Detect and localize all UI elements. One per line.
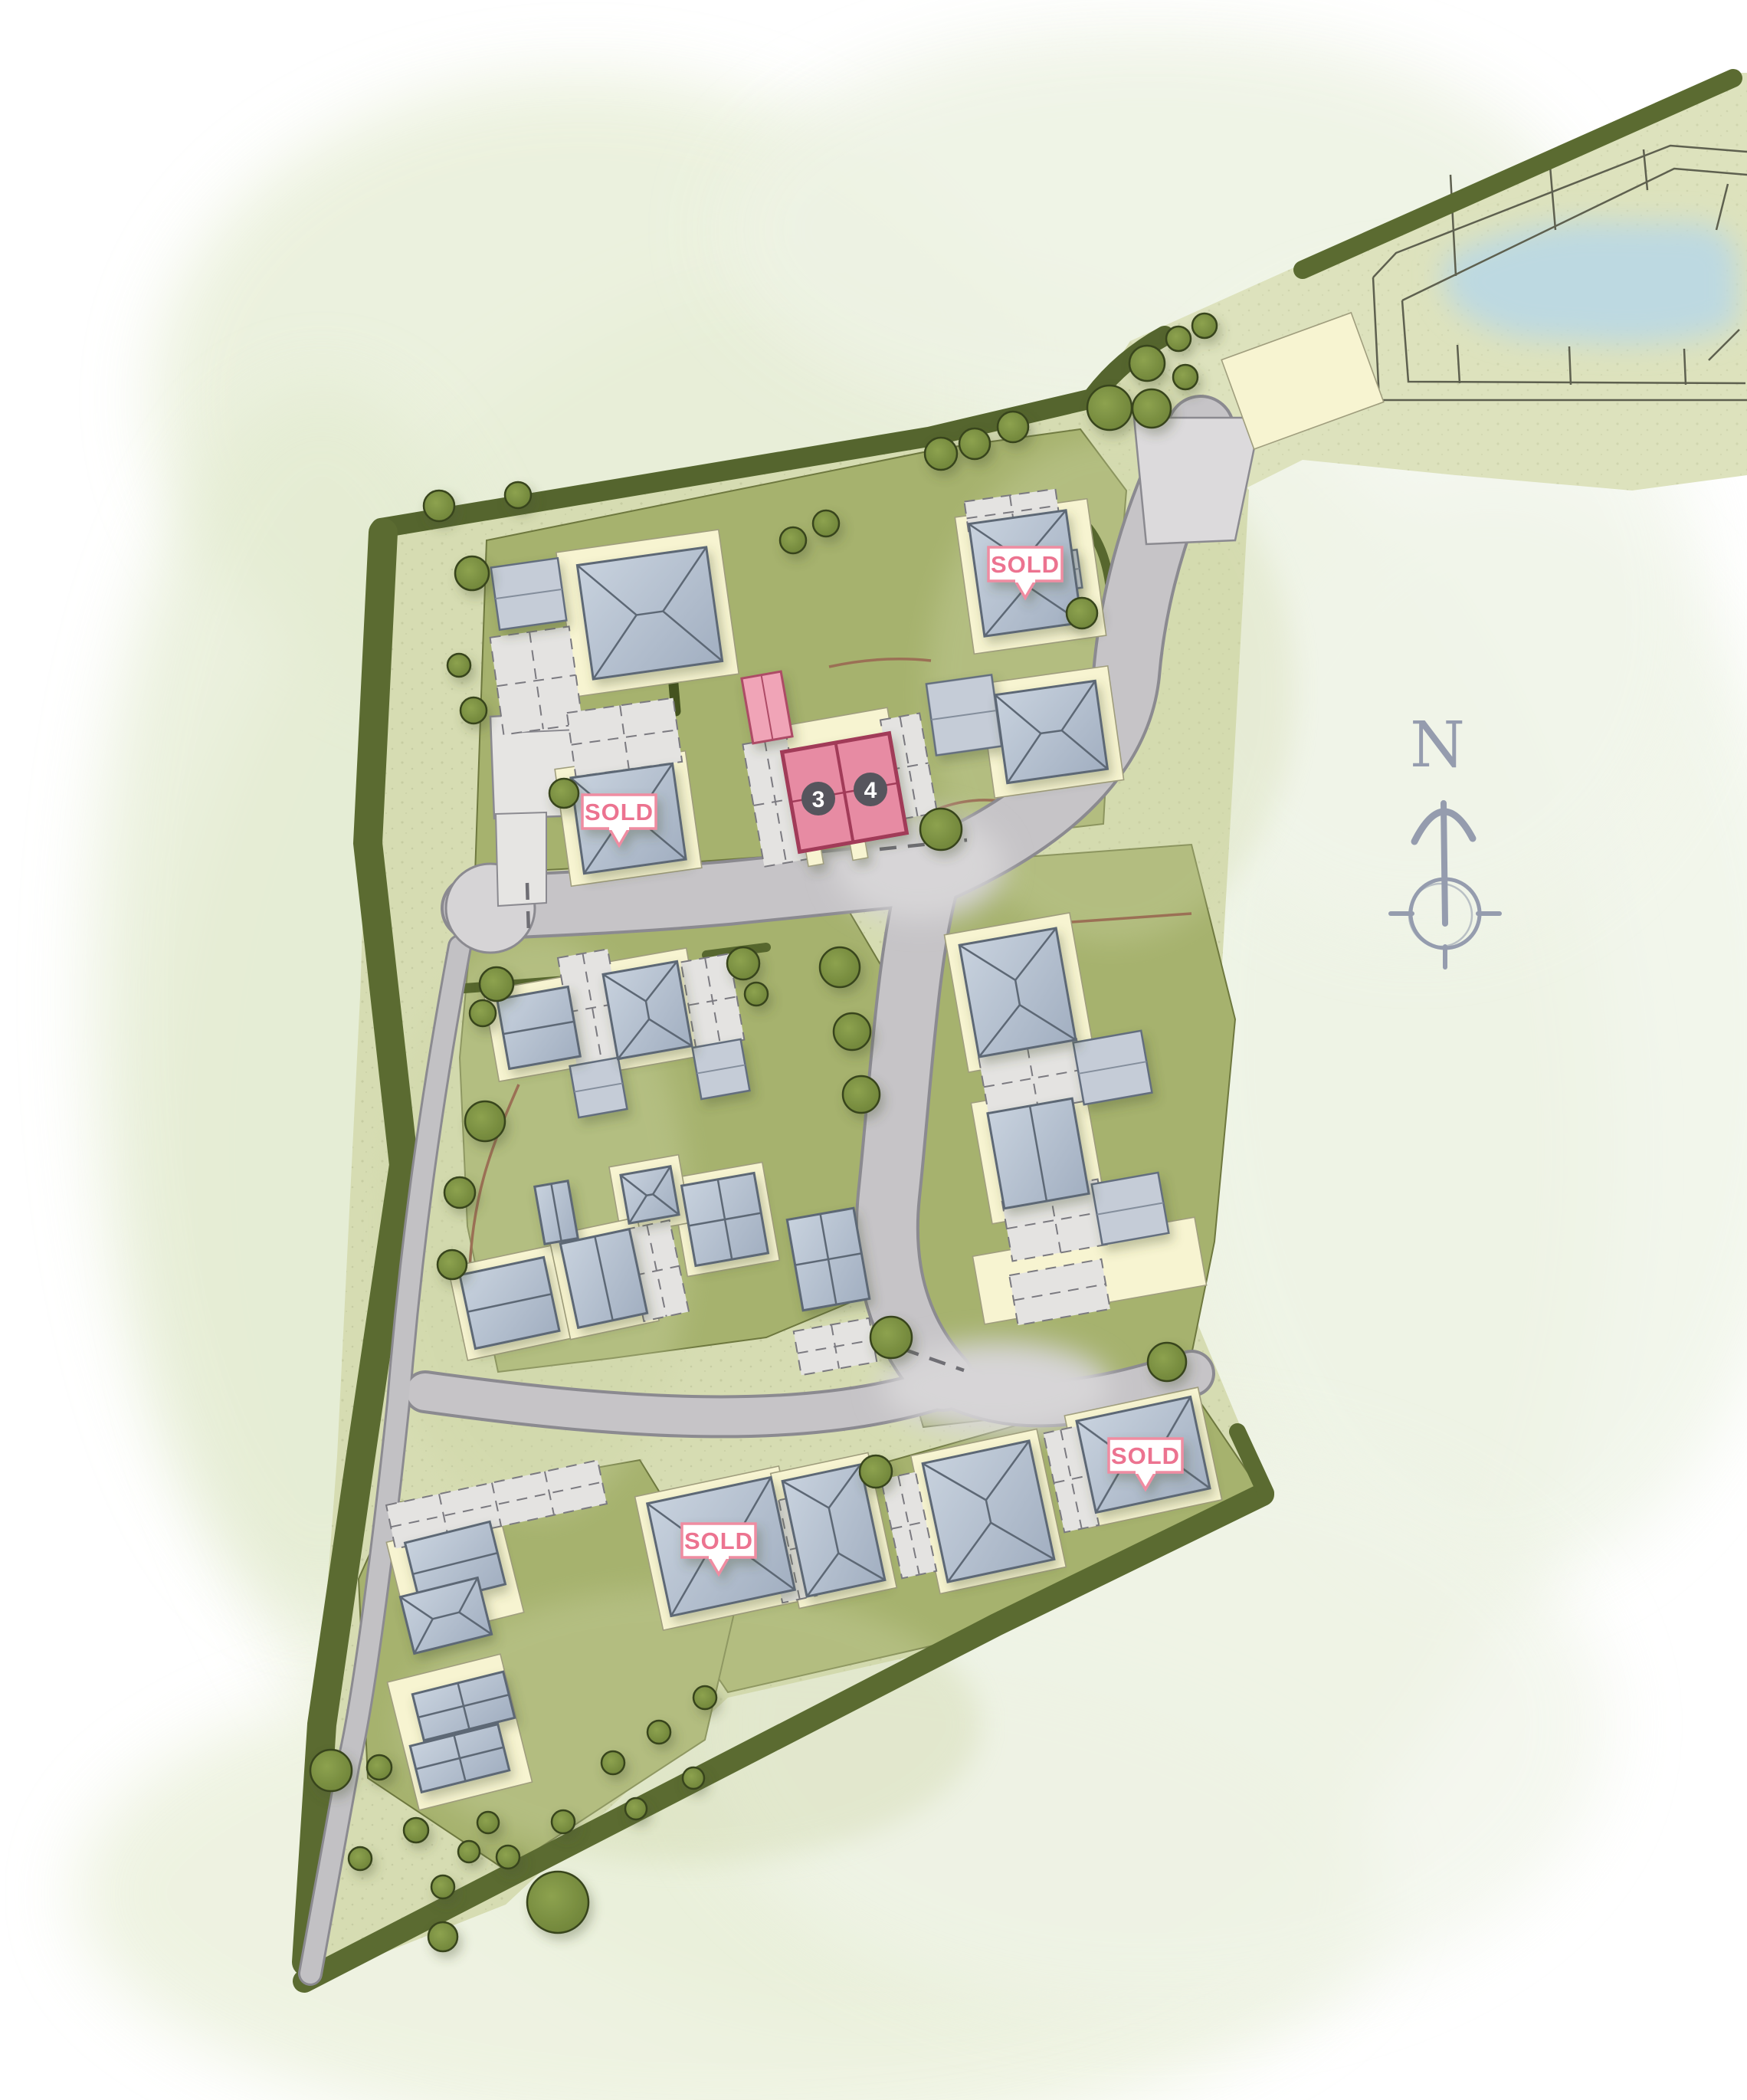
tree (998, 412, 1028, 442)
house-roof (988, 1098, 1089, 1209)
garage (1073, 1031, 1152, 1104)
sold-badge-label: SOLD (991, 551, 1060, 578)
house-roof (621, 1166, 679, 1223)
tree (870, 1317, 912, 1358)
pond (1444, 222, 1738, 343)
plot-units-3-4[interactable] (782, 733, 907, 852)
tree (505, 482, 531, 508)
garage (1092, 1173, 1169, 1245)
house-roof (577, 547, 722, 679)
sold-badge-label: SOLD (684, 1527, 753, 1554)
house-roof (923, 1441, 1054, 1582)
tree (1067, 598, 1097, 628)
tree (465, 1101, 505, 1141)
house-roof (497, 987, 581, 1069)
tree (647, 1721, 670, 1744)
site-plan: SOLDSOLDSOLDSOLD 34 N (0, 0, 1747, 2100)
tree (404, 1818, 428, 1842)
tree (820, 947, 860, 987)
tree (1148, 1343, 1186, 1381)
sold-badge-label: SOLD (585, 799, 654, 825)
tree (834, 1013, 870, 1050)
tree (727, 947, 759, 979)
tree (497, 1846, 520, 1869)
tree (444, 1177, 475, 1208)
tree (424, 491, 454, 521)
tree (1166, 326, 1191, 351)
tree (1132, 389, 1171, 428)
tree (745, 983, 768, 1006)
tree (959, 428, 990, 459)
tree (860, 1455, 892, 1488)
plot-number-marker[interactable]: 4 (854, 773, 887, 806)
garage (570, 1058, 628, 1117)
plot-number-marker[interactable]: 3 (801, 782, 835, 815)
house-roof (682, 1173, 769, 1265)
house-roof (995, 681, 1108, 783)
house-roof (787, 1208, 870, 1310)
tree (438, 1250, 467, 1279)
tree (431, 1875, 454, 1898)
tree (428, 1922, 457, 1951)
sold-badge-label: SOLD (1111, 1442, 1180, 1469)
compass-shaft (1444, 803, 1445, 924)
tree (920, 809, 962, 850)
tree (349, 1847, 372, 1870)
tree (601, 1751, 624, 1774)
garage (693, 1039, 750, 1099)
tree (1192, 313, 1217, 338)
court-drive-south (496, 812, 546, 906)
site-plan-canvas: SOLDSOLDSOLDSOLD 34 N (0, 0, 1747, 2100)
tree (1129, 346, 1165, 381)
tree (843, 1076, 880, 1113)
tree (625, 1798, 647, 1819)
tree (552, 1810, 575, 1833)
tree (813, 510, 839, 536)
tree (447, 654, 470, 677)
tree (470, 1000, 496, 1026)
tree (1173, 365, 1198, 389)
tree (925, 438, 957, 470)
compass-north-label: N (1410, 709, 1465, 782)
plot-number-label: 4 (864, 778, 877, 803)
tree (549, 779, 579, 808)
tree (458, 1841, 480, 1862)
tree (527, 1872, 588, 1933)
tree (477, 1812, 499, 1833)
garage (491, 558, 567, 629)
tree (683, 1767, 704, 1789)
house-roof (959, 928, 1076, 1057)
house-roof (460, 1257, 559, 1348)
garage (926, 674, 1001, 755)
tree (780, 527, 806, 553)
plot-number-label: 3 (812, 787, 825, 812)
tree (461, 697, 487, 724)
tree (1087, 386, 1132, 430)
tree (693, 1686, 716, 1709)
tree (310, 1750, 352, 1791)
tree (455, 556, 489, 590)
house-roof (603, 961, 692, 1058)
tree (367, 1755, 392, 1780)
tree (480, 967, 513, 1001)
